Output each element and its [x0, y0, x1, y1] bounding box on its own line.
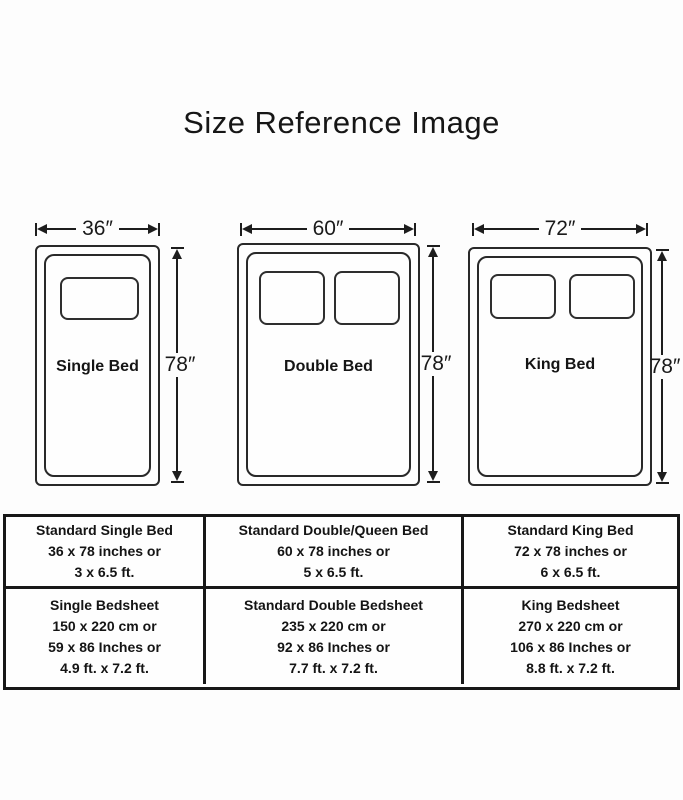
double-bed-height-label: 78″: [421, 352, 452, 376]
dimension-line: [119, 228, 148, 230]
dimension-line: [47, 228, 76, 230]
cell-line: 72 x 78 inches or: [514, 541, 627, 562]
dimension-line: [432, 376, 434, 471]
pillow: [60, 277, 139, 320]
arrowhead-left-icon: [242, 224, 252, 234]
dimension-line: [661, 261, 663, 355]
cell-line: 6 x 6.5 ft.: [541, 562, 601, 583]
king-bed-height-label: 78″: [650, 355, 681, 379]
cell-line: Standard Double Bedsheet: [244, 595, 423, 616]
arrow-end-bar: [427, 481, 440, 483]
king-bed-width-label: 72″: [539, 218, 582, 240]
arrowhead-up-icon: [172, 249, 182, 259]
arrowhead-down-icon: [172, 471, 182, 481]
table-cell-standard-king-bed: Standard King Bed 72 x 78 inches or 6 x …: [464, 517, 677, 589]
dimension-line: [432, 257, 434, 352]
arrowhead-down-icon: [428, 471, 438, 481]
page-title: Size Reference Image: [0, 105, 683, 141]
single-bed-height-label: 78″: [165, 353, 196, 377]
single-bed-label: Single Bed: [37, 358, 158, 376]
arrow-end-bar: [656, 482, 669, 484]
arrowhead-down-icon: [657, 472, 667, 482]
king-bed-label: King Bed: [470, 356, 650, 374]
size-reference-table: Standard Single Bed 36 x 78 inches or 3 …: [3, 514, 680, 690]
cell-line: 60 x 78 inches or: [277, 541, 390, 562]
cell-line: 36 x 78 inches or: [48, 541, 161, 562]
arrow-end-bar: [158, 223, 160, 236]
table-cell-standard-double-bedsheet: Standard Double Bedsheet 235 x 220 cm or…: [206, 589, 464, 684]
cell-line: 8.8 ft. x 7.2 ft.: [526, 658, 615, 679]
table-cell-single-bedsheet: Single Bedsheet 150 x 220 cm or 59 x 86 …: [6, 589, 206, 684]
arrow-end-bar: [414, 223, 416, 236]
cell-line: King Bedsheet: [521, 595, 619, 616]
dimension-line: [581, 228, 636, 230]
pillow: [569, 274, 635, 319]
cell-line: 235 x 220 cm or: [281, 616, 385, 637]
dimension-line: [484, 228, 539, 230]
king-bed-diagram: King Bed: [468, 247, 652, 486]
arrowhead-left-icon: [37, 224, 47, 234]
pillow: [334, 271, 400, 325]
double-bed-diagram: Double Bed: [237, 243, 420, 486]
double-bed-width-arrow: 60″: [240, 217, 416, 241]
table-cell-standard-single-bed: Standard Single Bed 36 x 78 inches or 3 …: [6, 517, 206, 589]
pillow: [259, 271, 325, 325]
cell-line: 4.9 ft. x 7.2 ft.: [60, 658, 149, 679]
cell-line: 270 x 220 cm or: [518, 616, 622, 637]
cell-line: Single Bedsheet: [50, 595, 159, 616]
arrowhead-right-icon: [148, 224, 158, 234]
double-bed-label: Double Bed: [239, 358, 418, 376]
cell-line: 59 x 86 Inches or: [48, 637, 161, 658]
cell-line: 5 x 6.5 ft.: [304, 562, 364, 583]
arrow-end-bar: [171, 481, 184, 483]
single-bed-width-arrow: 36″: [35, 217, 160, 241]
king-bed-height-arrow: 78″: [642, 249, 682, 484]
cell-line: Standard Single Bed: [36, 520, 173, 541]
cell-line: Standard Double/Queen Bed: [239, 520, 429, 541]
double-bed-height-arrow: 78″: [413, 245, 453, 483]
cell-line: 7.7 ft. x 7.2 ft.: [289, 658, 378, 679]
arrowhead-right-icon: [636, 224, 646, 234]
cell-line: Standard King Bed: [507, 520, 633, 541]
cell-line: 106 x 86 Inches or: [510, 637, 631, 658]
double-bed-width-label: 60″: [307, 218, 350, 240]
dimension-line: [349, 228, 404, 230]
pillow: [490, 274, 556, 319]
single-bed-diagram: Single Bed: [35, 245, 160, 486]
table-cell-king-bedsheet: King Bedsheet 270 x 220 cm or 106 x 86 I…: [464, 589, 677, 684]
dimension-line: [176, 377, 178, 471]
dimension-line: [661, 379, 663, 473]
arrowhead-up-icon: [428, 247, 438, 257]
cell-line: 92 x 86 Inches or: [277, 637, 390, 658]
single-bed-width-label: 36″: [76, 218, 119, 240]
arrowhead-left-icon: [474, 224, 484, 234]
arrow-end-bar: [646, 223, 648, 236]
single-bed-height-arrow: 78″: [157, 247, 197, 483]
size-reference-diagram: Size Reference Image 36″ Single Bed 78″ …: [0, 0, 683, 800]
cell-line: 3 x 6.5 ft.: [75, 562, 135, 583]
dimension-line: [176, 259, 178, 353]
king-bed-width-arrow: 72″: [472, 217, 648, 241]
cell-line: 150 x 220 cm or: [52, 616, 156, 637]
arrowhead-up-icon: [657, 251, 667, 261]
table-cell-standard-double-queen-bed: Standard Double/Queen Bed 60 x 78 inches…: [206, 517, 464, 589]
dimension-line: [252, 228, 307, 230]
arrowhead-right-icon: [404, 224, 414, 234]
